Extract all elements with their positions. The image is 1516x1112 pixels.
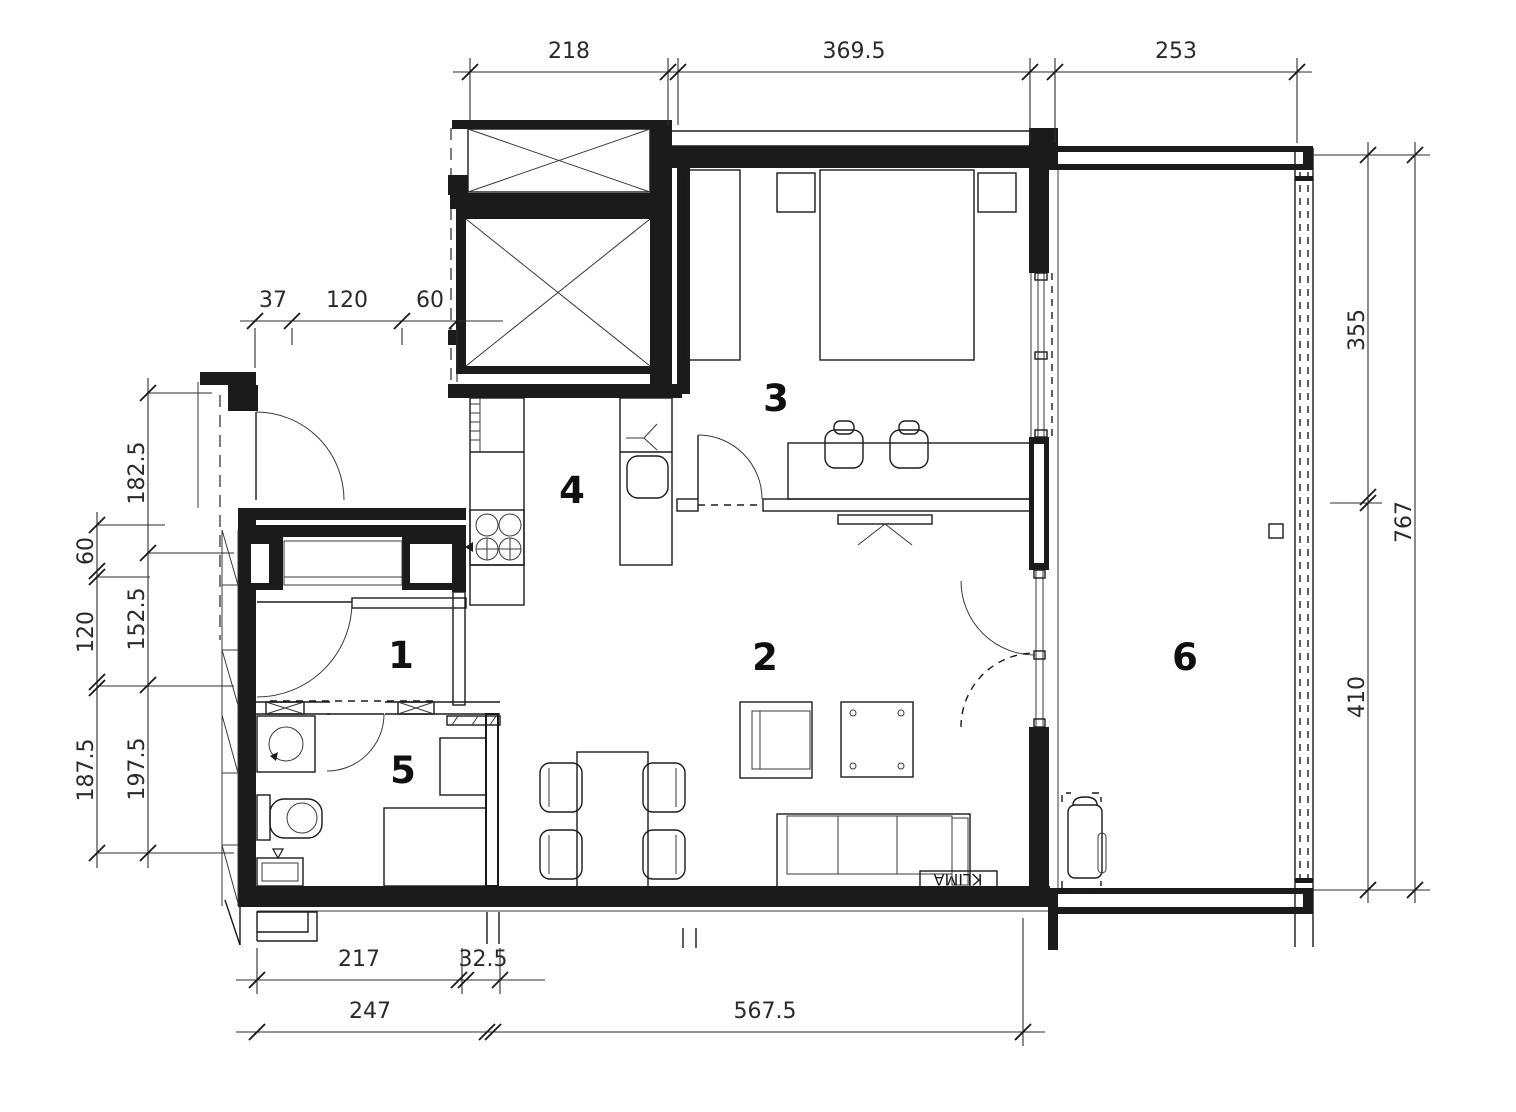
bed xyxy=(777,170,1016,360)
dim-lo-3: 187.5 xyxy=(74,739,99,802)
dim-chain-left-outer: 60 120 187.5 xyxy=(74,512,165,868)
dim-bl-1: 247 xyxy=(349,999,391,1024)
balcony-railing xyxy=(1295,148,1313,947)
vanity xyxy=(440,738,486,795)
dim-li-1: 182.5 xyxy=(125,442,150,505)
dim-chain-right-outer: 767 xyxy=(1392,142,1423,903)
dim-ul-2: 120 xyxy=(326,288,368,313)
entrance-door xyxy=(256,412,344,500)
balcony-french-door xyxy=(961,581,1035,727)
facade-trim xyxy=(222,530,238,906)
dim-lo-2: 120 xyxy=(74,611,99,653)
room-label-1: 1 xyxy=(388,634,414,677)
dim-ro-1: 767 xyxy=(1392,501,1417,543)
dim-ul-3: 60 xyxy=(416,288,444,313)
dim-top-1: 218 xyxy=(548,39,590,64)
dim-ri-1: 355 xyxy=(1345,309,1370,351)
washing-machine xyxy=(257,716,315,772)
wardrobe xyxy=(684,170,740,360)
dim-top-2: 369.5 xyxy=(823,39,886,64)
balcony-door-frame xyxy=(1034,570,1045,727)
tv xyxy=(838,515,932,545)
dining-chairs xyxy=(540,763,685,879)
dim-chain-bottom-lower: 247 567.5 xyxy=(236,918,1045,1046)
dim-bu-1: 217 xyxy=(338,947,380,972)
lower-structures xyxy=(225,900,696,948)
room-label-5: 5 xyxy=(390,749,416,792)
towel-radiator xyxy=(447,716,500,725)
room-label-4: 4 xyxy=(559,469,585,512)
dim-chain-bottom-upper: 217 32.5 xyxy=(236,947,545,994)
dim-li-3: 197.5 xyxy=(125,738,150,801)
dim-bl-2: 567.5 xyxy=(734,999,797,1024)
armchair xyxy=(740,702,812,778)
dining-table xyxy=(577,752,648,890)
floor-drain xyxy=(273,849,283,858)
dim-ul-1: 37 xyxy=(259,288,287,313)
room-labels: 1 2 3 4 5 6 xyxy=(388,377,1198,792)
sink xyxy=(627,456,668,498)
shower-tray xyxy=(257,858,303,886)
floor-plan-page: KLIMA xyxy=(0,0,1516,1112)
bedroom-door xyxy=(698,435,762,499)
ac-unit-label: KLIMA xyxy=(934,870,983,889)
room-label-3: 3 xyxy=(763,377,789,420)
balcony-drain xyxy=(1269,524,1283,538)
stove xyxy=(465,510,524,565)
bedroom-window xyxy=(1031,273,1052,437)
doors xyxy=(256,412,1035,771)
room1-door xyxy=(257,602,352,697)
dim-bu-2: 32.5 xyxy=(459,947,508,972)
toilet xyxy=(257,795,322,840)
shower xyxy=(384,808,486,886)
floor-plan: KLIMA xyxy=(0,0,1516,1112)
walls xyxy=(198,120,1313,950)
dim-lo-1: 60 xyxy=(74,537,99,565)
balcony-chair xyxy=(1062,793,1106,890)
stool-2 xyxy=(890,421,928,468)
room-label-6: 6 xyxy=(1172,636,1198,679)
entry-closet xyxy=(284,541,402,585)
kitchen-counter-right xyxy=(620,398,672,565)
bathroom-door xyxy=(327,714,384,771)
kitchen-counter-left xyxy=(470,398,524,605)
dim-top-3: 253 xyxy=(1155,39,1197,64)
dim-ri-2: 410 xyxy=(1345,676,1370,718)
stool-1 xyxy=(825,421,863,468)
lintel-marks xyxy=(266,702,434,714)
side-table xyxy=(841,702,913,777)
hidden-lines xyxy=(220,128,1308,886)
dim-chain-left-inner: 182.5 152.5 197.5 xyxy=(97,378,234,868)
dim-li-2: 152.5 xyxy=(125,588,150,651)
room-label-2: 2 xyxy=(752,636,778,679)
